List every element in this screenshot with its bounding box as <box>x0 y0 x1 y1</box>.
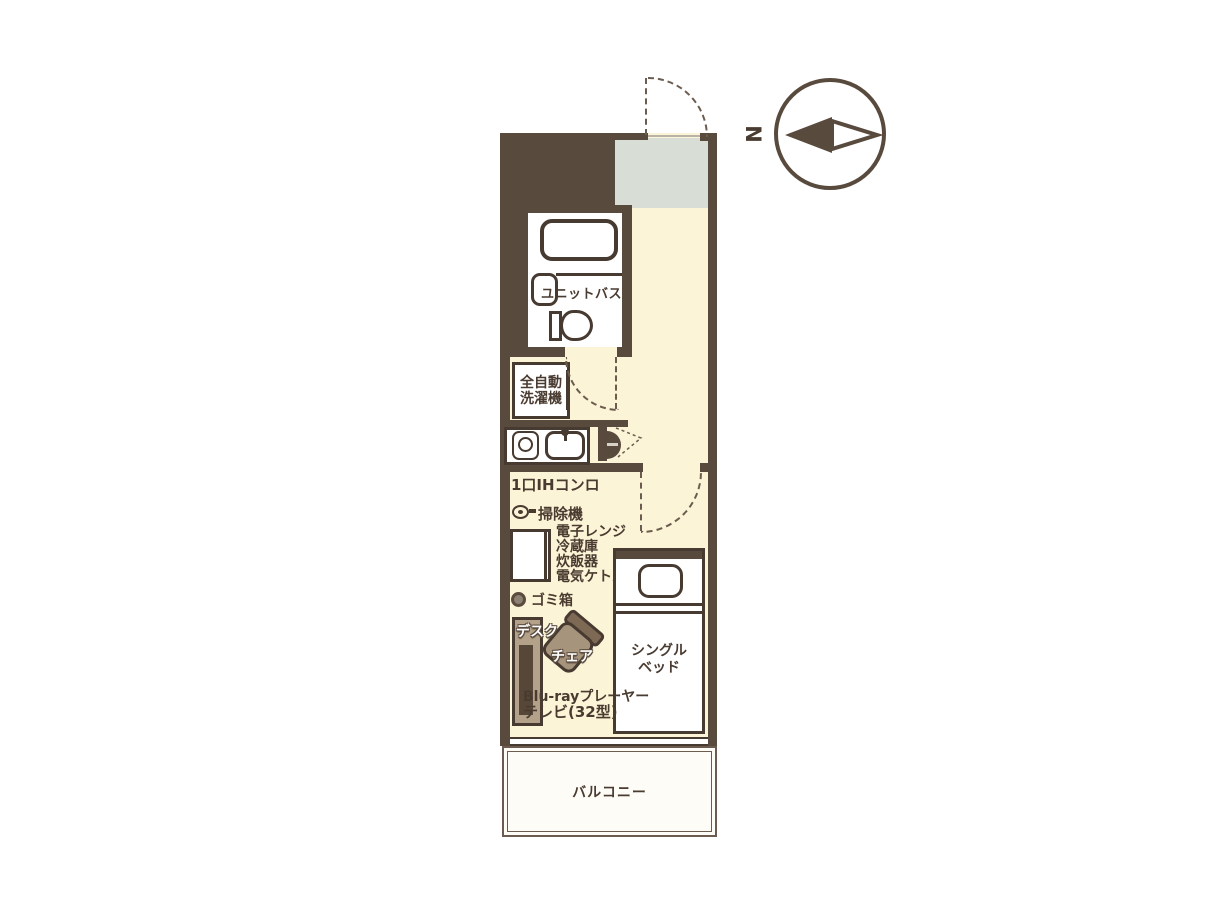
balcony-window <box>510 737 708 746</box>
chair-label: チェア <box>551 646 593 666</box>
unit-bath-label: ユニットバス <box>541 283 622 302</box>
washer-label-line2: 洗濯機 <box>520 391 562 407</box>
vacuum-icon-nozzle <box>529 509 536 513</box>
washer-label-line1: 全自動 <box>520 375 562 391</box>
toilet-bowl <box>560 310 593 341</box>
balcony-label: バルコニー <box>572 782 647 802</box>
appliance-shelf-door <box>544 532 547 579</box>
fixture-wall <box>598 427 607 461</box>
balcony-label-wrap: バルコニー <box>504 748 715 835</box>
entrance-door-leaf <box>645 78 647 135</box>
bed-headboard <box>616 551 702 559</box>
floor-plan: ユニットバス 全自動 洗濯機 1口IHコンロ 掃除機 電子レンジ 冷蔵庫 炊飯器… <box>0 0 1218 918</box>
vacuum-label: 掃除機 <box>538 503 583 524</box>
bed-label-line1: シングル <box>616 643 702 660</box>
bed-label-line2: ベッド <box>616 660 702 677</box>
washing-machine: 全自動 洗濯機 <box>512 362 570 419</box>
bed-label: シングル ベッド <box>616 643 702 677</box>
bed-blanket-line-1 <box>616 603 702 606</box>
bath-divider-line <box>556 273 622 276</box>
wall-top-segment <box>615 133 648 140</box>
bath-wall-left <box>510 205 528 357</box>
wall-right <box>708 133 717 746</box>
single-bed: シングル ベッド <box>613 548 705 734</box>
bed-pillow <box>638 564 683 598</box>
appliance-microwave: 電子レンジ <box>556 525 626 540</box>
ih-burner-circle <box>518 437 533 452</box>
tv-label: テレビ(32型) <box>523 701 618 722</box>
ih-stove-label: 1口IHコンロ <box>511 474 600 495</box>
room-divider-cap <box>700 463 708 472</box>
fixture-swing-dashes <box>613 423 645 461</box>
vacuum-icon-dot <box>518 510 523 514</box>
bath-wall-bottom-left <box>510 347 565 357</box>
bath-wall-right <box>622 205 632 357</box>
north-arrow-icon <box>772 76 888 192</box>
desk-label: デスク <box>516 621 558 641</box>
balcony: バルコニー <box>502 746 717 837</box>
faucet-stem <box>564 434 567 441</box>
entrance-floor <box>613 138 710 208</box>
compass: N <box>740 70 900 200</box>
trash-bin-icon <box>511 592 526 607</box>
entrance-door-arc <box>648 77 708 137</box>
north-label: N <box>741 125 765 143</box>
bed-blanket-line-2 <box>616 611 702 614</box>
wall-top-left-block <box>500 133 615 213</box>
bathtub <box>540 219 618 261</box>
bath-wall-bottom-right <box>617 347 632 357</box>
kitchen-wall-top <box>500 420 628 427</box>
